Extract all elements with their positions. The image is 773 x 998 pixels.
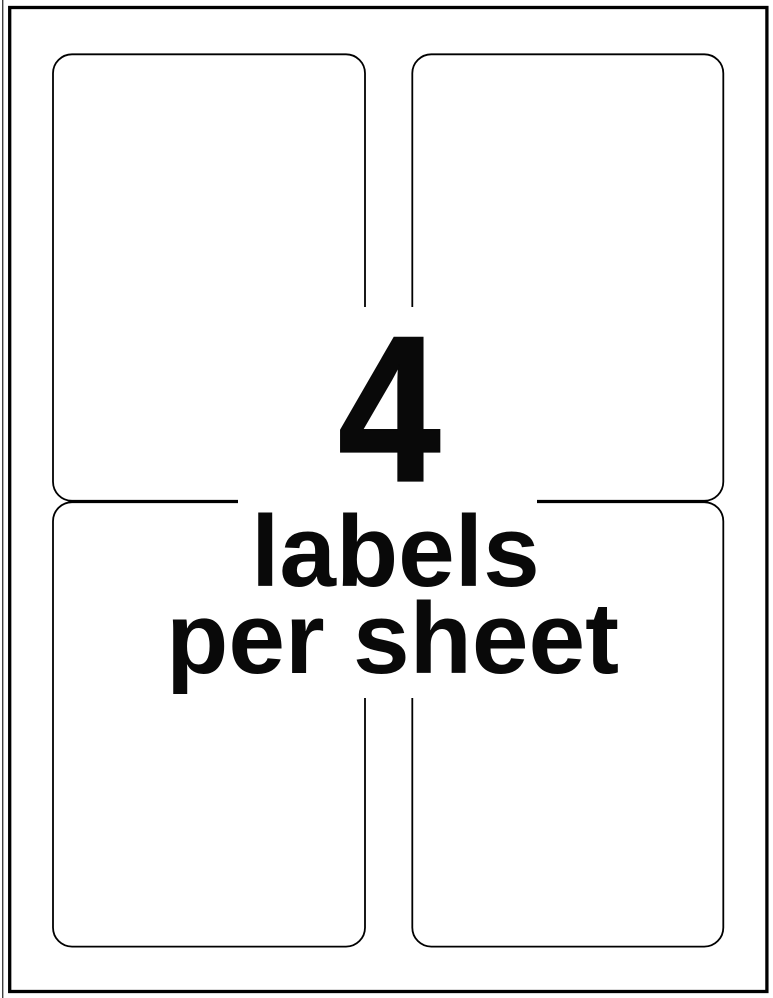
svg-text:4: 4	[338, 294, 440, 525]
svg-text:per sheet: per sheet	[166, 582, 619, 695]
